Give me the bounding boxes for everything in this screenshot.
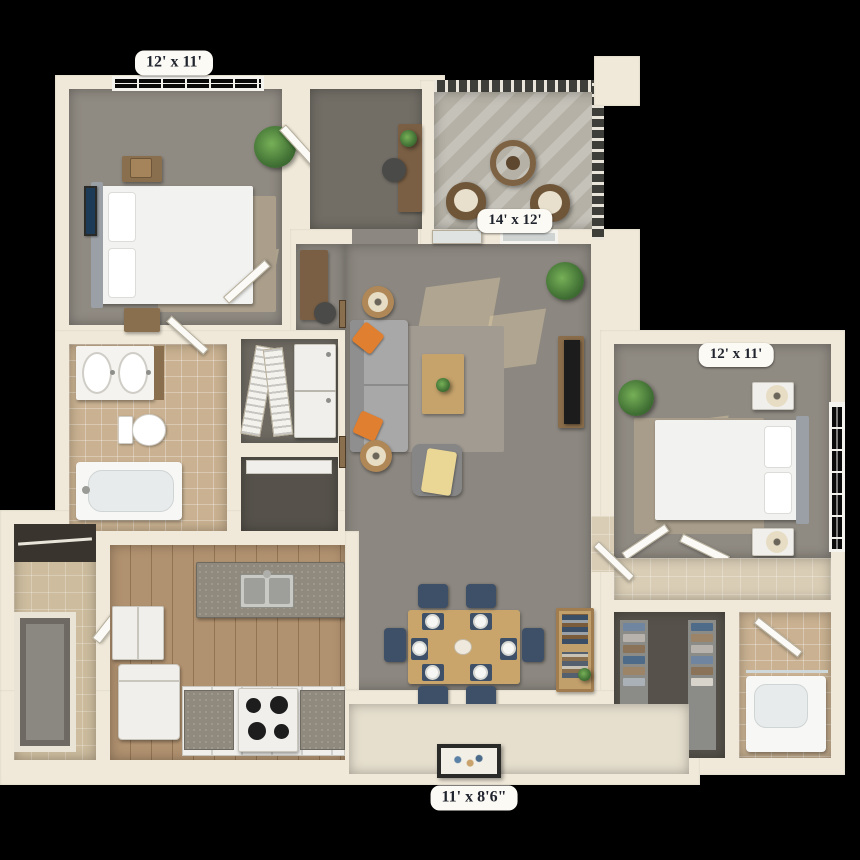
countertop — [184, 690, 234, 750]
clothes-stack — [691, 678, 713, 686]
closet-shelf-right — [688, 620, 716, 750]
sink-faucet — [263, 570, 271, 578]
clothes-stack — [623, 645, 645, 653]
bathtub-basin — [88, 470, 174, 512]
bed-1-pillow — [108, 192, 136, 242]
dimension-label-bedroom-2: 12' x 11' — [699, 343, 774, 367]
plant-bookshelf — [578, 668, 591, 681]
clothes-stack — [691, 623, 713, 631]
bedroom-2-window — [829, 402, 845, 552]
table-lamp — [766, 385, 788, 407]
cabinet-seam — [137, 606, 139, 660]
dinner-plate — [425, 665, 440, 680]
sink-basin — [269, 578, 290, 604]
dinner-plate — [473, 614, 488, 629]
washer-dryer-seam — [294, 390, 336, 392]
sink-basin — [244, 578, 265, 604]
bed-2-pillow — [764, 426, 792, 468]
bathtub-2-basin — [754, 684, 808, 728]
clothes-stack — [623, 656, 645, 664]
clothes-stack — [691, 645, 713, 653]
bed-1-pillow — [108, 248, 136, 298]
clothes-stack — [623, 678, 645, 686]
clothes-stack — [691, 634, 713, 642]
bed-2-pillow — [764, 472, 792, 514]
clothes-stack — [691, 656, 713, 664]
patio-chair-cushion — [454, 189, 478, 212]
wall-art — [84, 186, 97, 236]
plant-living-room — [546, 262, 584, 300]
stove-burner — [246, 698, 261, 713]
clothes-stack — [691, 667, 713, 675]
entry-shelving — [14, 612, 76, 752]
storage-basket — [130, 158, 152, 178]
tv — [564, 340, 580, 424]
wall-art — [339, 436, 346, 468]
nightstand — [124, 308, 160, 332]
dinner-plate — [473, 665, 488, 680]
plant-den — [400, 130, 417, 147]
shower-glass — [746, 670, 828, 673]
dining-chair — [522, 628, 544, 662]
table-lamp — [368, 292, 388, 312]
dining-chair — [418, 584, 448, 608]
dining-chair — [384, 628, 406, 662]
wall-kitchen-dining — [345, 531, 359, 690]
dinner-plate — [412, 641, 427, 656]
wall-art — [339, 300, 346, 328]
stove-burner — [274, 724, 289, 739]
dimension-label-patio: 11' x 8'6" — [431, 786, 518, 811]
dining-chair — [466, 584, 496, 608]
patio-art-frame — [437, 744, 501, 778]
vanity-wood-edge — [154, 346, 164, 400]
freezer-lid-seam — [118, 680, 180, 682]
bed-2-headboard — [796, 416, 809, 524]
clothes-stack — [623, 634, 645, 642]
stove-burner — [270, 696, 288, 714]
bookshelf-books — [562, 614, 588, 644]
balcony-railing — [434, 80, 604, 92]
sink-faucet — [146, 370, 151, 375]
patio-floor — [349, 704, 689, 774]
dimension-label-bedroom-1: 12' x 11' — [135, 51, 213, 76]
table-lamp — [766, 531, 788, 553]
countertop — [300, 690, 345, 750]
coffee-table-plant — [436, 378, 450, 392]
balcony-column — [594, 56, 640, 106]
dimension-label-living-room: 14' x 12' — [477, 209, 552, 233]
bathroom-sink — [82, 352, 112, 394]
toilet-tank — [118, 416, 133, 444]
table-lamp — [366, 446, 386, 466]
floor-plan: 12' x 11' 14' x 12' 12' x 11' 11' x 8'6" — [0, 0, 860, 860]
clothes-stack — [623, 623, 645, 631]
stove-burner — [248, 722, 266, 740]
plant-bedroom-2 — [618, 380, 654, 416]
washer-dryer-dial — [326, 398, 331, 403]
clothes-stack — [623, 667, 645, 675]
patio-table-top — [506, 156, 520, 170]
bathroom-sink — [118, 352, 148, 394]
closet-shelf — [246, 460, 332, 474]
bedroom-2-hall-floor — [614, 558, 831, 600]
desk-chair — [314, 302, 336, 324]
sofa-cushion-seam — [364, 384, 408, 386]
chest-freezer — [118, 664, 180, 740]
table-centerpiece — [454, 639, 472, 655]
bathtub-faucet — [82, 486, 90, 494]
washer-dryer-dial — [326, 352, 331, 357]
toilet-bowl — [132, 414, 166, 446]
patio-door — [432, 230, 482, 244]
stove — [238, 688, 298, 752]
den-opening — [352, 229, 418, 244]
dinner-plate — [501, 641, 516, 656]
bedroom-1-window — [112, 76, 264, 91]
sink-faucet — [110, 370, 115, 375]
dinner-plate — [425, 614, 440, 629]
den-desk-chair — [382, 158, 406, 182]
